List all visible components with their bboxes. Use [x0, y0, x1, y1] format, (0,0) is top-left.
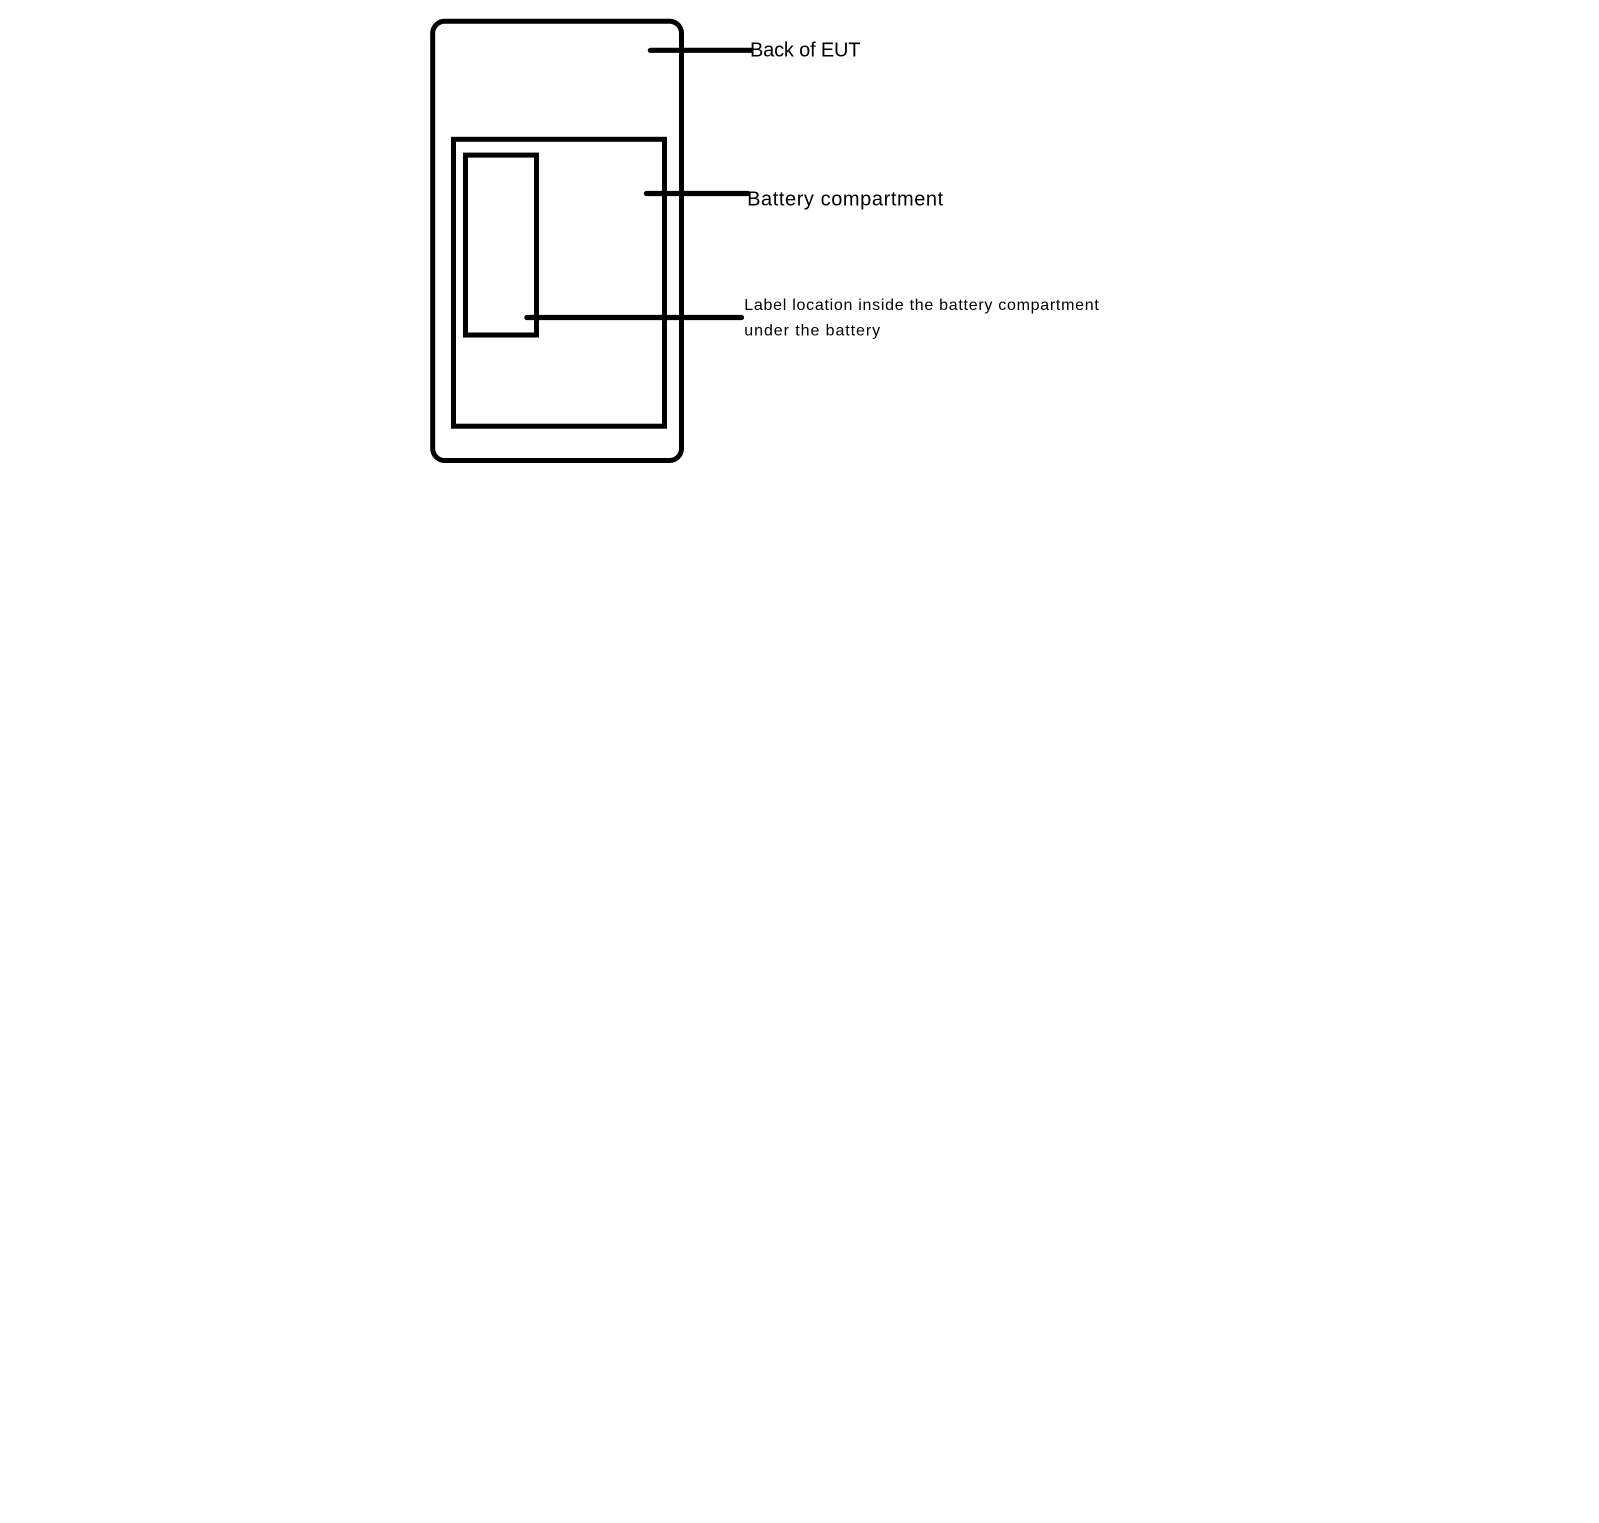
svg-text:under the battery: under the battery — [744, 323, 881, 340]
svg-text:Back of EUT: Back of EUT — [750, 40, 860, 62]
svg-text:Label location inside the batt: Label location inside the battery compar… — [744, 297, 1099, 314]
svg-text:Battery compartment: Battery compartment — [747, 189, 944, 211]
